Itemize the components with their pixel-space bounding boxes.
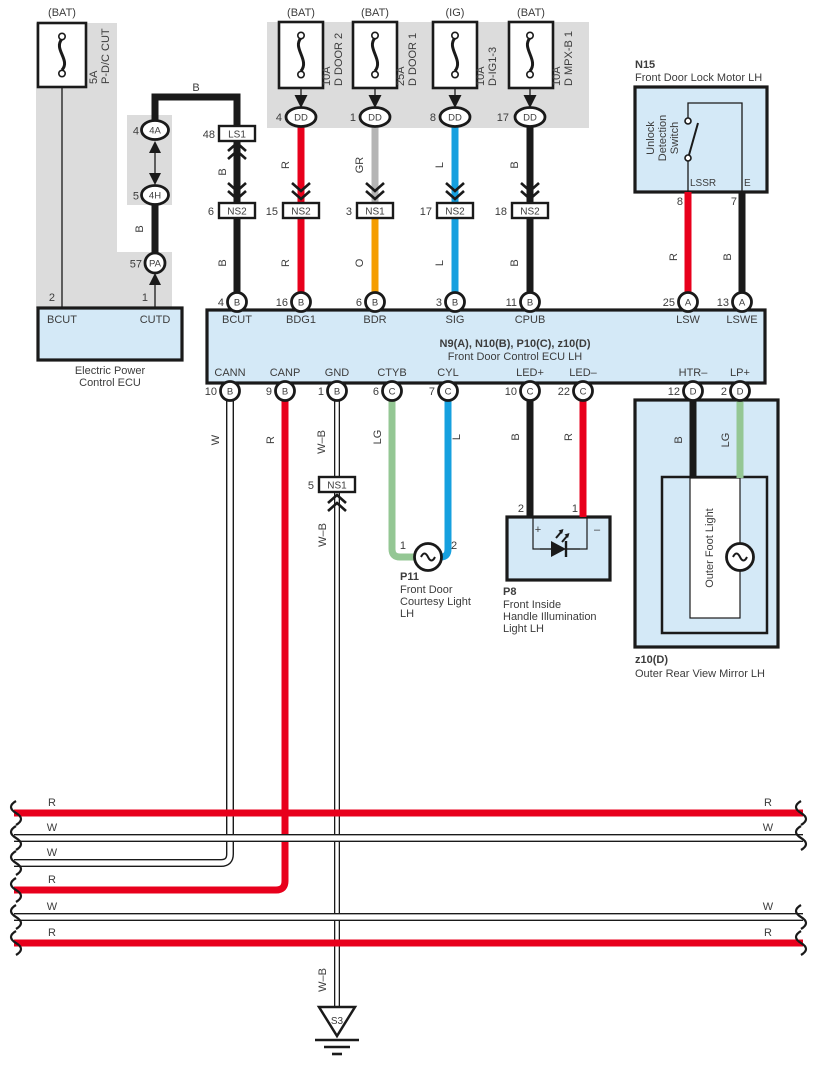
wire-label-r1: R — [280, 161, 292, 169]
fuse5-name: D MPX-B 1 — [563, 31, 575, 86]
pin-ledp-letter: C — [527, 387, 534, 398]
bus-wires — [14, 813, 803, 943]
pin-cyl-num: 7 — [429, 386, 435, 398]
epcu-name-line2: Control ECU — [79, 377, 141, 389]
fuse2-amp: 10A — [321, 66, 333, 86]
pin-ledp-name: LED+ — [516, 367, 544, 379]
pin-lp-num: 2 — [721, 386, 727, 398]
bus3-left-label: W — [47, 847, 58, 859]
ns1a-num: 3 — [346, 206, 352, 218]
wire-label-b-top: B — [192, 82, 199, 94]
pin-canp-num: 9 — [266, 386, 272, 398]
p11-pin2: 2 — [451, 540, 457, 552]
pin-bdg1-letter: B — [298, 298, 304, 309]
wire-label-l2: L — [434, 260, 446, 266]
j4h-label: 4H — [149, 191, 161, 202]
bus5-right-label: W — [763, 901, 774, 913]
pin-cann-num: 10 — [205, 386, 217, 398]
jpa-num: 57 — [130, 259, 142, 271]
ns2a-label: NS2 — [227, 207, 247, 218]
wire-label-b1: B — [509, 161, 521, 168]
ground-id: S3 — [331, 1016, 344, 1027]
pin-bcut-num: 4 — [218, 297, 224, 309]
courtesy-light-bulb — [415, 544, 442, 571]
pin-bcut-name: BCUT — [222, 314, 252, 326]
n15-sw3: Switch — [669, 122, 681, 154]
wire-break-marks — [11, 801, 806, 955]
pin-ledp-num: 10 — [505, 386, 517, 398]
jpa-label: PA — [149, 259, 162, 270]
fuse3-name: D DOOR 1 — [407, 33, 419, 86]
ns2c-label: NS2 — [445, 207, 465, 218]
p8-name-line2: Handle Illumination — [503, 611, 597, 623]
dd1-label: DD — [294, 113, 308, 124]
pin-ctyb-letter: C — [389, 387, 396, 398]
j4a-label: 4A — [149, 126, 161, 137]
wire-label-wb-mid: W–B — [317, 523, 329, 547]
epcu-pin2: 2 — [49, 292, 55, 304]
p11-name-line3: LH — [400, 608, 414, 620]
wire-label-gr: GR — [354, 157, 366, 174]
pin-gnd-letter: B — [334, 387, 340, 398]
ls1-label: LS1 — [228, 130, 246, 141]
pin-lsw-name: LSW — [676, 314, 700, 326]
bus2-left-label: W — [47, 822, 58, 834]
dd2-label: DD — [368, 113, 382, 124]
p8-minus: – — [594, 524, 601, 536]
n15-num8: 8 — [677, 196, 683, 208]
pin-canp-name: CANP — [270, 367, 301, 379]
pin-sig-letter: B — [452, 298, 458, 309]
pin-ledm-num: 22 — [558, 386, 570, 398]
pin-lsw-letter: A — [685, 298, 692, 309]
wiring-diagram: (BAT) (BAT) (BAT) (IG) (BAT) 5A P-D/C CU… — [0, 0, 817, 1063]
wire-label-b-lswe: B — [722, 253, 734, 260]
epcu-bcut: BCUT — [47, 314, 77, 326]
epcu-cutd: CUTD — [140, 314, 171, 326]
fuse3-amp: 25A — [395, 66, 407, 86]
ecu-title-name: Front Door Control ECU LH — [448, 351, 583, 363]
pin-cpub-letter: B — [527, 298, 533, 309]
pin-ctyb-name: CTYB — [377, 367, 406, 379]
pin-htr-num: 12 — [668, 386, 680, 398]
fuse3-tag: (BAT) — [361, 7, 389, 19]
pin-ctyb-num: 6 — [373, 386, 379, 398]
fuse1-name: P-D/C CUT — [100, 28, 112, 84]
wire-label-wb-top: W–B — [316, 430, 328, 454]
pin-htr-name: HTR– — [679, 367, 709, 379]
fuse5-amp: 10A — [551, 66, 563, 86]
ls1-num: 48 — [203, 129, 215, 141]
pin-sig-name: SIG — [446, 314, 465, 326]
p8-name-line3: Light LH — [503, 623, 544, 635]
wire-label-b-led: B — [510, 433, 522, 440]
bus5-left-label: W — [47, 901, 58, 913]
pin-gnd-name: GND — [325, 367, 350, 379]
pin-cann-name: CANN — [214, 367, 245, 379]
p8-num1: 1 — [572, 503, 578, 515]
wire-label-b2: B — [509, 259, 521, 266]
bus2-right-label: W — [763, 822, 774, 834]
n15-num7: 7 — [731, 196, 737, 208]
dd1-num: 4 — [276, 112, 282, 124]
pin-bdr-letter: B — [372, 298, 378, 309]
pin-canp-letter: B — [282, 387, 288, 398]
ecu-title-code: N9(A), N10(B), P10(C), z10(D) — [440, 338, 591, 350]
bus1-right-label: R — [764, 797, 772, 809]
ns1b-num: 5 — [308, 480, 314, 492]
wire-label-wb-bot: W–B — [317, 968, 329, 992]
wire-label-b-bcut: B — [217, 259, 229, 266]
wire-label-l-cyl: L — [451, 434, 463, 440]
bus1-left-label: R — [48, 797, 56, 809]
p8-plus: + — [535, 524, 541, 536]
pin-bdg1-name: BDG1 — [286, 314, 316, 326]
dd4-num: 17 — [497, 112, 509, 124]
pin-bcut-letter: B — [234, 298, 240, 309]
pin-lswe-name: LSWE — [726, 314, 757, 326]
epcu-pin1: 1 — [142, 292, 148, 304]
n15-name: Front Door Lock Motor LH — [635, 72, 762, 84]
wire-label-r-canp: R — [265, 436, 277, 444]
n15-sw2: Detection — [657, 115, 669, 161]
ns2d-num: 18 — [495, 206, 507, 218]
dd2-num: 1 — [350, 112, 356, 124]
p11-name-line1: Front Door — [400, 584, 453, 596]
pin-cpub-num: 11 — [506, 297, 517, 309]
dd3-num: 8 — [430, 112, 436, 124]
outer-foot-light-bulb — [727, 544, 754, 571]
ns2c-num: 17 — [420, 206, 432, 218]
n15-e: E — [744, 178, 751, 189]
wire-label-lg-ctyb: LG — [372, 430, 384, 445]
bus6-left-label: R — [48, 927, 56, 939]
pin-cann-letter: B — [227, 387, 233, 398]
pin-sig-num: 3 — [436, 297, 442, 309]
pin-gnd-num: 1 — [318, 386, 324, 398]
epcu-name-line1: Electric Power — [75, 365, 146, 377]
wire-ctyb-green — [392, 391, 415, 557]
pin-lswe-letter: A — [739, 298, 746, 309]
p8-num2: 2 — [518, 503, 524, 515]
ns1b-label: NS1 — [327, 481, 347, 492]
wiring-diagram-page: (BAT) (BAT) (BAT) (IG) (BAT) 5A P-D/C CU… — [0, 0, 817, 1063]
p8-id: P8 — [503, 586, 516, 598]
pin-lswe-num: 13 — [717, 297, 729, 309]
pin-lsw-num: 25 — [663, 297, 675, 309]
pin-bdg1-num: 16 — [276, 297, 288, 309]
wire-label-r-led: R — [563, 433, 575, 441]
wire-label-b-htr: B — [673, 436, 685, 443]
wire-cyl-blue — [440, 391, 448, 557]
fuse1-amp: 5A — [88, 70, 100, 84]
wire-label-w-cann: W — [210, 434, 222, 445]
wire-label-r-lsw: R — [668, 253, 680, 261]
pin-lp-letter: D — [737, 387, 744, 398]
fuse5-tag: (BAT) — [517, 7, 545, 19]
fuse4-name: D-IG1-3 — [487, 47, 499, 86]
fuse4-tag: (IG) — [446, 7, 465, 19]
pin-ledm-name: LED– — [569, 367, 597, 379]
z10-name: Outer Rear View Mirror LH — [635, 668, 765, 680]
wire-label-lg-lp: LG — [720, 433, 732, 448]
n15-sw1: Unlock — [645, 121, 657, 155]
bus4-left-label: R — [48, 874, 56, 886]
fuse2-name: D DOOR 2 — [333, 33, 345, 86]
wire-label-b-ls1: B — [217, 168, 229, 175]
j4h-num: 5 — [133, 191, 139, 203]
pin-lp-name: LP+ — [730, 367, 750, 379]
wire-label-o: O — [354, 258, 366, 267]
wire-label-l1: L — [434, 162, 446, 168]
ns2a-num: 6 — [208, 206, 214, 218]
wire-label-b-mid: B — [134, 225, 146, 232]
pin-cyl-letter: C — [445, 387, 452, 398]
pin-ledm-letter: C — [580, 387, 587, 398]
wire-cann-white — [14, 391, 230, 863]
p11-pin1: 1 — [400, 540, 406, 552]
z10-id: z10(D) — [635, 654, 668, 666]
pin-bdr-name: BDR — [363, 314, 386, 326]
wire-label-r2: R — [280, 259, 292, 267]
fuse1-tag: (BAT) — [48, 7, 76, 19]
ns2b-num: 15 — [266, 206, 278, 218]
n15-id: N15 — [635, 59, 655, 71]
fuse4-amp: 10A — [475, 66, 487, 86]
p11-id: P11 — [400, 571, 419, 583]
p11-name-line2: Courtesy Light — [400, 596, 471, 608]
dd4-label: DD — [523, 113, 537, 124]
ground-point — [315, 1007, 359, 1054]
z10-inner-label: Outer Foot Light — [704, 508, 716, 588]
pin-bdr-num: 6 — [356, 297, 362, 309]
pin-cyl-name: CYL — [437, 367, 458, 379]
p8-name-line1: Front Inside — [503, 599, 561, 611]
ns1a-label: NS1 — [365, 207, 385, 218]
j4a-num: 4 — [133, 126, 139, 138]
pin-cpub-name: CPUB — [515, 314, 546, 326]
pin-htr-letter: D — [690, 387, 697, 398]
ns2b-label: NS2 — [291, 207, 311, 218]
fuse2-tag: (BAT) — [287, 7, 315, 19]
ns2d-label: NS2 — [520, 207, 540, 218]
n15-lssr: LSSR — [690, 178, 716, 189]
bus6-right-label: R — [764, 927, 772, 939]
dd3-label: DD — [448, 113, 462, 124]
